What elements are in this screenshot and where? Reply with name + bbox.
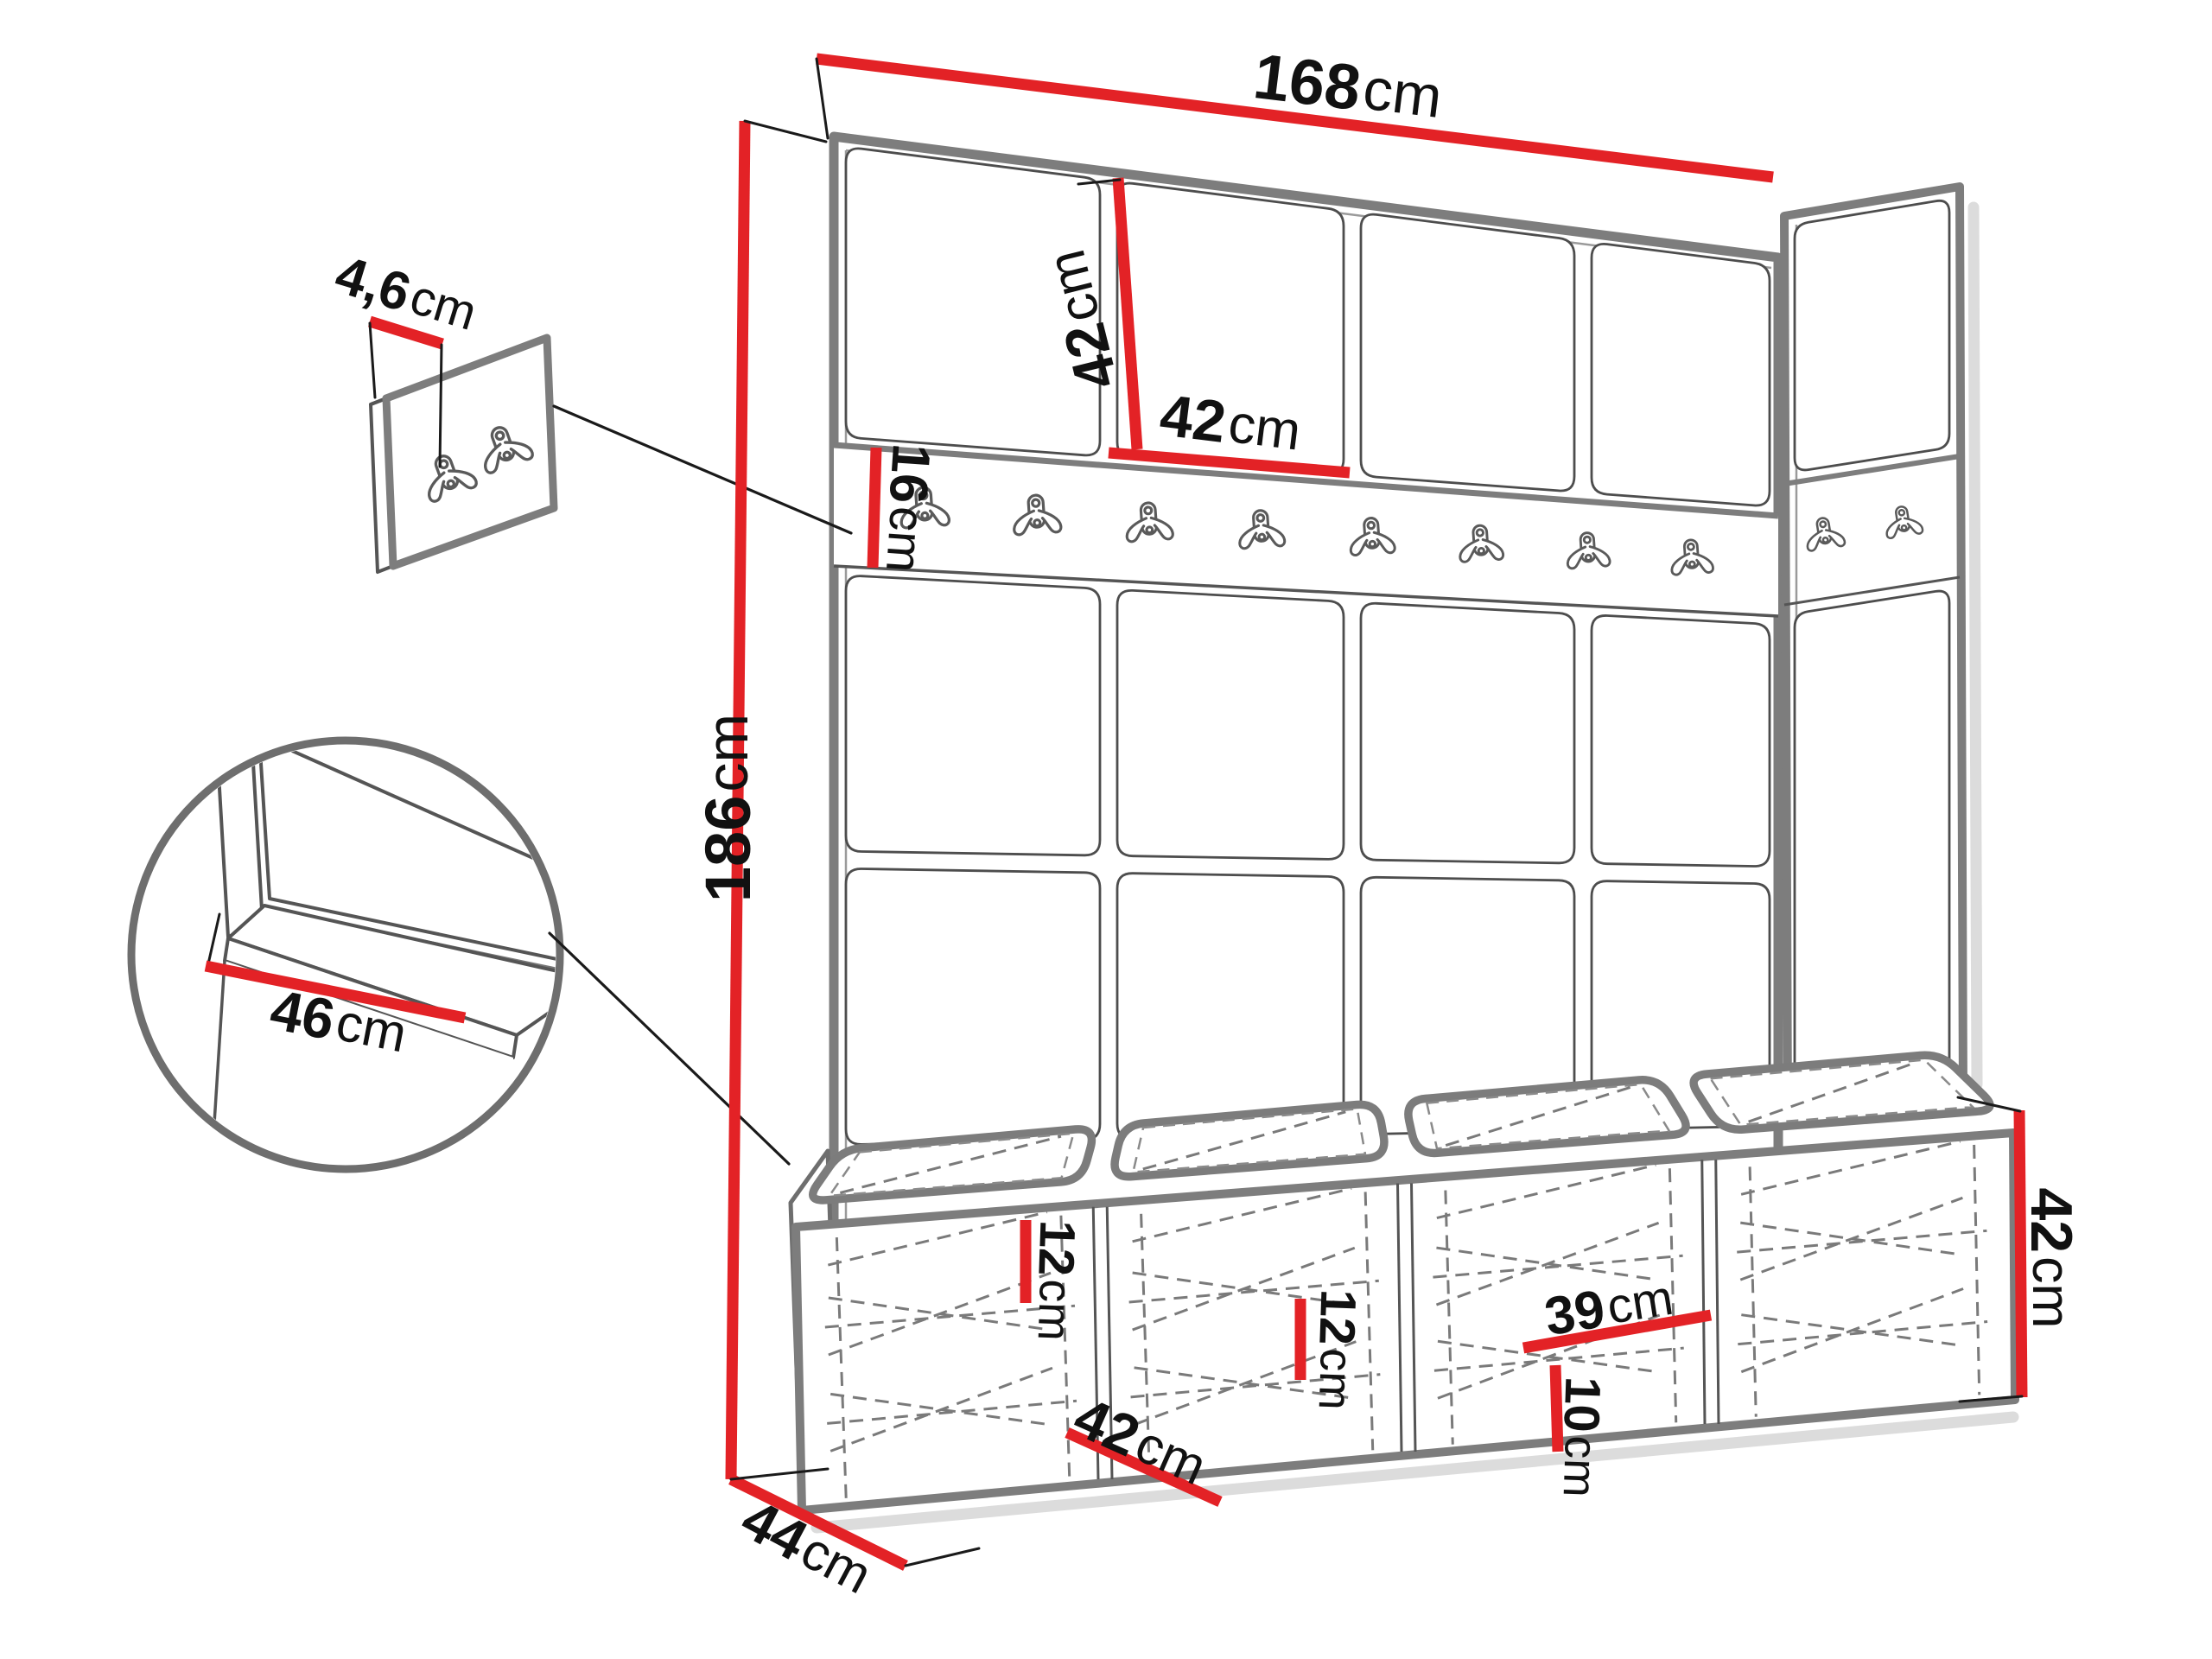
dim-total-height-label: 186cm — [692, 714, 764, 902]
wall-panel-cell — [1592, 615, 1770, 866]
svg-text:12cm: 12cm — [1306, 1288, 1367, 1411]
dim-line-rail-height — [873, 448, 876, 568]
corner-return-panel — [1784, 187, 1977, 1125]
wall-panel-cell — [1117, 874, 1344, 1139]
wall-panel-cell — [1117, 590, 1344, 859]
wall-panel-cell — [846, 576, 1100, 855]
wall-panel-cell — [1361, 214, 1574, 491]
wall-panel-cell — [1361, 603, 1574, 863]
dim-shelf-spacing-left-label: 12cm — [1026, 1219, 1086, 1342]
svg-text:10cm: 10cm — [1551, 1376, 1611, 1498]
wall-panel-cell — [846, 868, 1100, 1144]
return-shadow — [1974, 207, 1977, 1084]
svg-text:16cm: 16cm — [873, 442, 941, 574]
leader-line-bench-corner — [550, 933, 789, 1164]
dim-bottom-gap-label: 10cm — [1551, 1376, 1611, 1498]
leader-line-hook-panel — [554, 406, 851, 533]
dim-bench-height-label: 42cm — [2018, 1187, 2084, 1328]
furniture-dimension-diagram: 168cm 186cm 42cm 42cm 16cm 4,6cm 46cm 44… — [0, 0, 2212, 1659]
svg-text:12cm: 12cm — [1026, 1219, 1086, 1342]
wall-panel-cell — [1592, 244, 1770, 505]
svg-text:42cm: 42cm — [2018, 1187, 2084, 1328]
wall-hook-panel-detail — [371, 338, 554, 572]
wall-panel-cell — [1795, 200, 1949, 470]
bench-corner-detail — [131, 736, 605, 1175]
wall-panel-cell — [1795, 591, 1949, 1109]
dim-shelf-spacing-mid-label: 12cm — [1306, 1288, 1367, 1411]
svg-text:186cm: 186cm — [692, 714, 764, 902]
dim-line-bench-height — [2019, 1110, 2022, 1397]
dim-rail-height-label: 16cm — [873, 442, 941, 574]
